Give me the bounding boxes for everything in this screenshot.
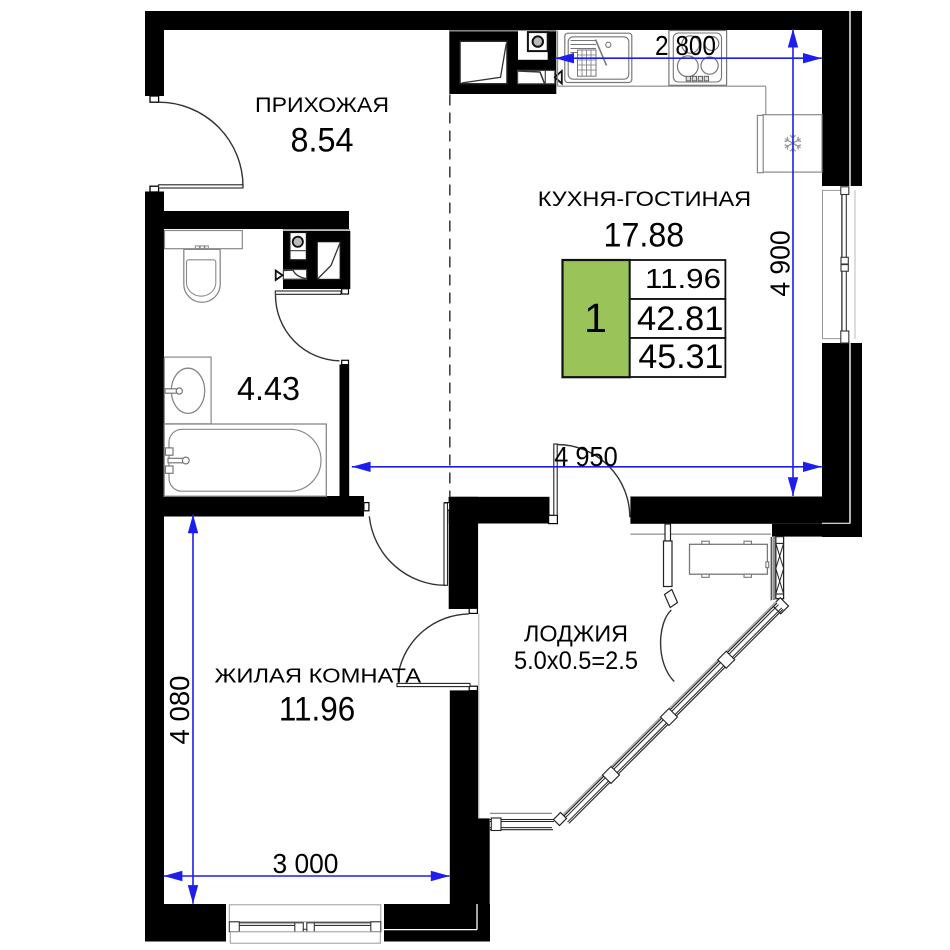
svg-text:11.96: 11.96	[279, 690, 355, 728]
svg-text:ПРИХОЖАЯ: ПРИХОЖАЯ	[255, 94, 389, 117]
svg-text:КУХНЯ-ГОСТИНАЯ: КУХНЯ-ГОСТИНАЯ	[538, 188, 751, 211]
svg-text:4 950: 4 950	[554, 441, 618, 472]
svg-text:ЛОДЖИЯ: ЛОДЖИЯ	[524, 621, 628, 647]
svg-text:45.31: 45.31	[638, 338, 723, 376]
svg-text:4 080: 4 080	[164, 676, 195, 745]
svg-text:2 800: 2 800	[655, 30, 716, 61]
svg-text:1: 1	[584, 295, 607, 341]
svg-text:3 000: 3 000	[273, 848, 339, 879]
svg-text:11.96: 11.96	[645, 263, 721, 294]
svg-text:4 900: 4 900	[765, 230, 796, 296]
svg-text:8.54: 8.54	[291, 122, 354, 160]
svg-text:17.88: 17.88	[604, 217, 685, 255]
svg-text:ЖИЛАЯ КОМНАТА: ЖИЛАЯ КОМНАТА	[214, 666, 421, 688]
svg-text:5.0x0.5=2.5: 5.0x0.5=2.5	[514, 647, 638, 675]
svg-text:4.43: 4.43	[237, 370, 300, 407]
svg-text:42.81: 42.81	[637, 300, 723, 338]
